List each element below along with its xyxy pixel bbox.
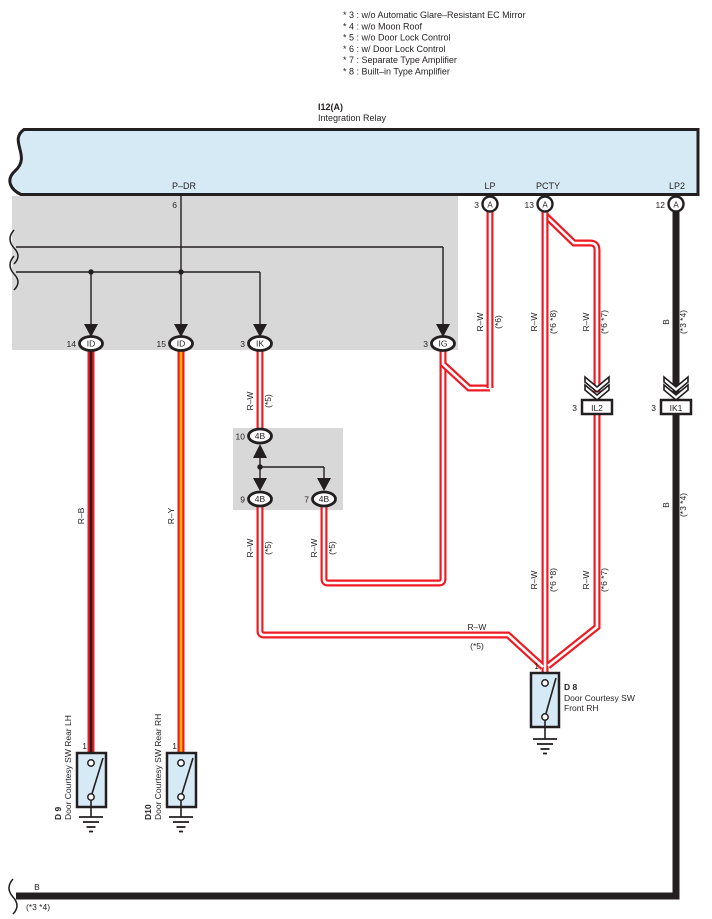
connector-ik1: 3 IK1 bbox=[651, 400, 691, 414]
note-line: * 4 : w/o Moon Roof bbox=[343, 21, 423, 31]
connector-code: IG bbox=[439, 339, 448, 349]
connector-pin-number: 15 bbox=[157, 339, 167, 349]
terminal-lp-pin: 3 A bbox=[474, 197, 497, 212]
connector-9-4b: 9 4B bbox=[240, 492, 271, 506]
connector-pin-number: 3 bbox=[572, 403, 577, 413]
wire-color-label: R–B bbox=[76, 507, 86, 524]
terminal-pcty-pin: 13 A bbox=[525, 197, 553, 212]
connector-code: ID bbox=[87, 339, 96, 349]
connector-3-ig: 3 IG bbox=[423, 337, 454, 351]
switch-name: Door Courtesy SW Rear LH bbox=[63, 715, 73, 820]
pin-number: 1 bbox=[534, 661, 539, 671]
wire-color-label: B bbox=[661, 502, 671, 508]
pin-number: 6 bbox=[172, 200, 177, 210]
connector-letter: A bbox=[487, 201, 493, 210]
terminal-name-lp: LP bbox=[484, 181, 495, 191]
wire-color-label: R–W bbox=[309, 539, 319, 558]
terminal-name-lp2: LP2 bbox=[669, 181, 685, 191]
wire-color-label: R–W bbox=[581, 571, 591, 590]
connector-7-4b: 7 4B bbox=[304, 492, 335, 506]
connector-code: IK1 bbox=[670, 403, 683, 413]
connector-10-4b: 10 4B bbox=[236, 429, 272, 443]
wire-color-label: R–Y bbox=[166, 507, 176, 524]
connector-pin-number: 7 bbox=[304, 495, 309, 505]
option-notes: * 3 : w/o Automatic Glare–Resistant EC M… bbox=[343, 10, 526, 77]
wiring-diagram-page: 3 IL2 3 IK1 14 ID 15 ID 3 IK 3 IG 10 4B … bbox=[0, 0, 712, 919]
wire-option-label: (*6 *8) bbox=[548, 310, 558, 334]
connector-14-id: 14 ID bbox=[67, 337, 103, 351]
relay-code: I12(A) bbox=[318, 102, 343, 112]
wire-option-label: (*6 *8) bbox=[548, 568, 558, 592]
note-line: * 3 : w/o Automatic Glare–Resistant EC M… bbox=[343, 10, 526, 20]
connector-15-id: 15 ID bbox=[157, 337, 193, 351]
ground-icon bbox=[533, 739, 557, 754]
wire-option-label: (*6 *7) bbox=[599, 568, 609, 592]
pin-number: 3 bbox=[474, 200, 479, 210]
ground-icon bbox=[79, 817, 103, 832]
wire-option-label: (*3 *4) bbox=[26, 902, 50, 912]
connector-pin-number: 3 bbox=[423, 339, 428, 349]
connector-code: 4B bbox=[319, 494, 330, 504]
wire-color-label: R–W bbox=[475, 313, 485, 332]
wire-b-ik1-to-ground-bus bbox=[16, 414, 676, 896]
connector-code: IL2 bbox=[591, 403, 603, 413]
wire-r-w-il2-to-d8 bbox=[548, 414, 597, 666]
wire-option-label: (*5) bbox=[263, 394, 273, 408]
wire-option-label: (*6) bbox=[493, 315, 503, 329]
wire-option-label: (*6 *7) bbox=[599, 310, 609, 334]
wiring-diagram-canvas: 3 IL2 3 IK1 14 ID 15 ID 3 IK 3 IG 10 4B … bbox=[0, 0, 712, 919]
connector-code: IK bbox=[256, 339, 264, 349]
wire-color-label: R–W bbox=[245, 392, 255, 411]
relay-name: Integration Relay bbox=[318, 113, 387, 123]
relay-title: I12(A) Integration Relay bbox=[318, 102, 387, 123]
switch-d9: 1 D 9 Door Courtesy SW Rear LH bbox=[53, 715, 106, 831]
wire-color-label: B bbox=[661, 319, 671, 325]
pin-number: 1 bbox=[82, 741, 87, 751]
switch-name: Door Courtesy SW Rear RH bbox=[153, 714, 163, 820]
connector-il2: 3 IL2 bbox=[572, 400, 612, 414]
connector-code: 4B bbox=[255, 494, 266, 504]
pin-number: 13 bbox=[525, 200, 535, 210]
wire-r-w-ig-to-lp-link bbox=[443, 356, 490, 388]
pin-number: 1 bbox=[172, 741, 177, 751]
wire-color-label: R–W bbox=[245, 539, 255, 558]
connector-letter: A bbox=[542, 201, 548, 210]
note-line: * 5 : w/o Door Lock Control bbox=[343, 33, 451, 43]
switch-d10: 1 D10 Door Courtesy SW Rear RH bbox=[143, 714, 196, 832]
wire-color-label: R–W bbox=[529, 313, 539, 332]
connector-letter: A bbox=[673, 201, 679, 210]
switch-code: D 8 bbox=[564, 682, 578, 692]
wire-option-label: (*3 *4) bbox=[678, 493, 688, 517]
switch-name: Door Courtesy SW bbox=[564, 693, 635, 703]
switch-name: Front RH bbox=[564, 703, 598, 713]
switch-code: D10 bbox=[143, 804, 153, 820]
connector-pin-number: 3 bbox=[240, 339, 245, 349]
connector-pin-number: 9 bbox=[240, 495, 245, 505]
ground-icon bbox=[169, 817, 193, 832]
terminal-name-pcty: PCTY bbox=[536, 181, 560, 191]
wire-color-label: R–W bbox=[529, 571, 539, 590]
connector-pin-number: 10 bbox=[236, 432, 246, 442]
connector-pin-number: 14 bbox=[67, 339, 77, 349]
integration-relay-box bbox=[10, 130, 698, 195]
wire-option-label: (*5) bbox=[263, 541, 273, 555]
wire-color-label: B bbox=[34, 882, 40, 892]
wire-color-label: R–W bbox=[468, 622, 487, 632]
connector-pin-number: 3 bbox=[651, 403, 656, 413]
pin-number: 12 bbox=[656, 200, 666, 210]
wire-option-label: (*5) bbox=[470, 641, 484, 651]
wire-option-label: (*5) bbox=[327, 541, 337, 555]
note-line: * 7 : Separate Type Amplifier bbox=[343, 55, 457, 65]
terminal-name-pdr: P–DR bbox=[172, 181, 197, 191]
terminal-lp2-pin: 12 A bbox=[656, 197, 684, 212]
note-line: * 8 : Built–in Type Amplifier bbox=[343, 67, 450, 77]
connector-code: ID bbox=[177, 339, 186, 349]
wire-r-w-pcty-branch-il2 bbox=[545, 215, 597, 398]
wire-color-label: R–W bbox=[581, 313, 591, 332]
relay-internal-shade bbox=[12, 196, 458, 350]
connector-3-ik: 3 IK bbox=[240, 337, 271, 351]
note-line: * 6 : w/ Door Lock Control bbox=[343, 44, 446, 54]
wire-option-label: (*3 *4) bbox=[678, 310, 688, 334]
switch-d8: 1 D 8 Door Courtesy SW Front RH bbox=[531, 661, 635, 754]
connector-code: 4B bbox=[255, 431, 266, 441]
switch-code: D 9 bbox=[53, 807, 63, 821]
